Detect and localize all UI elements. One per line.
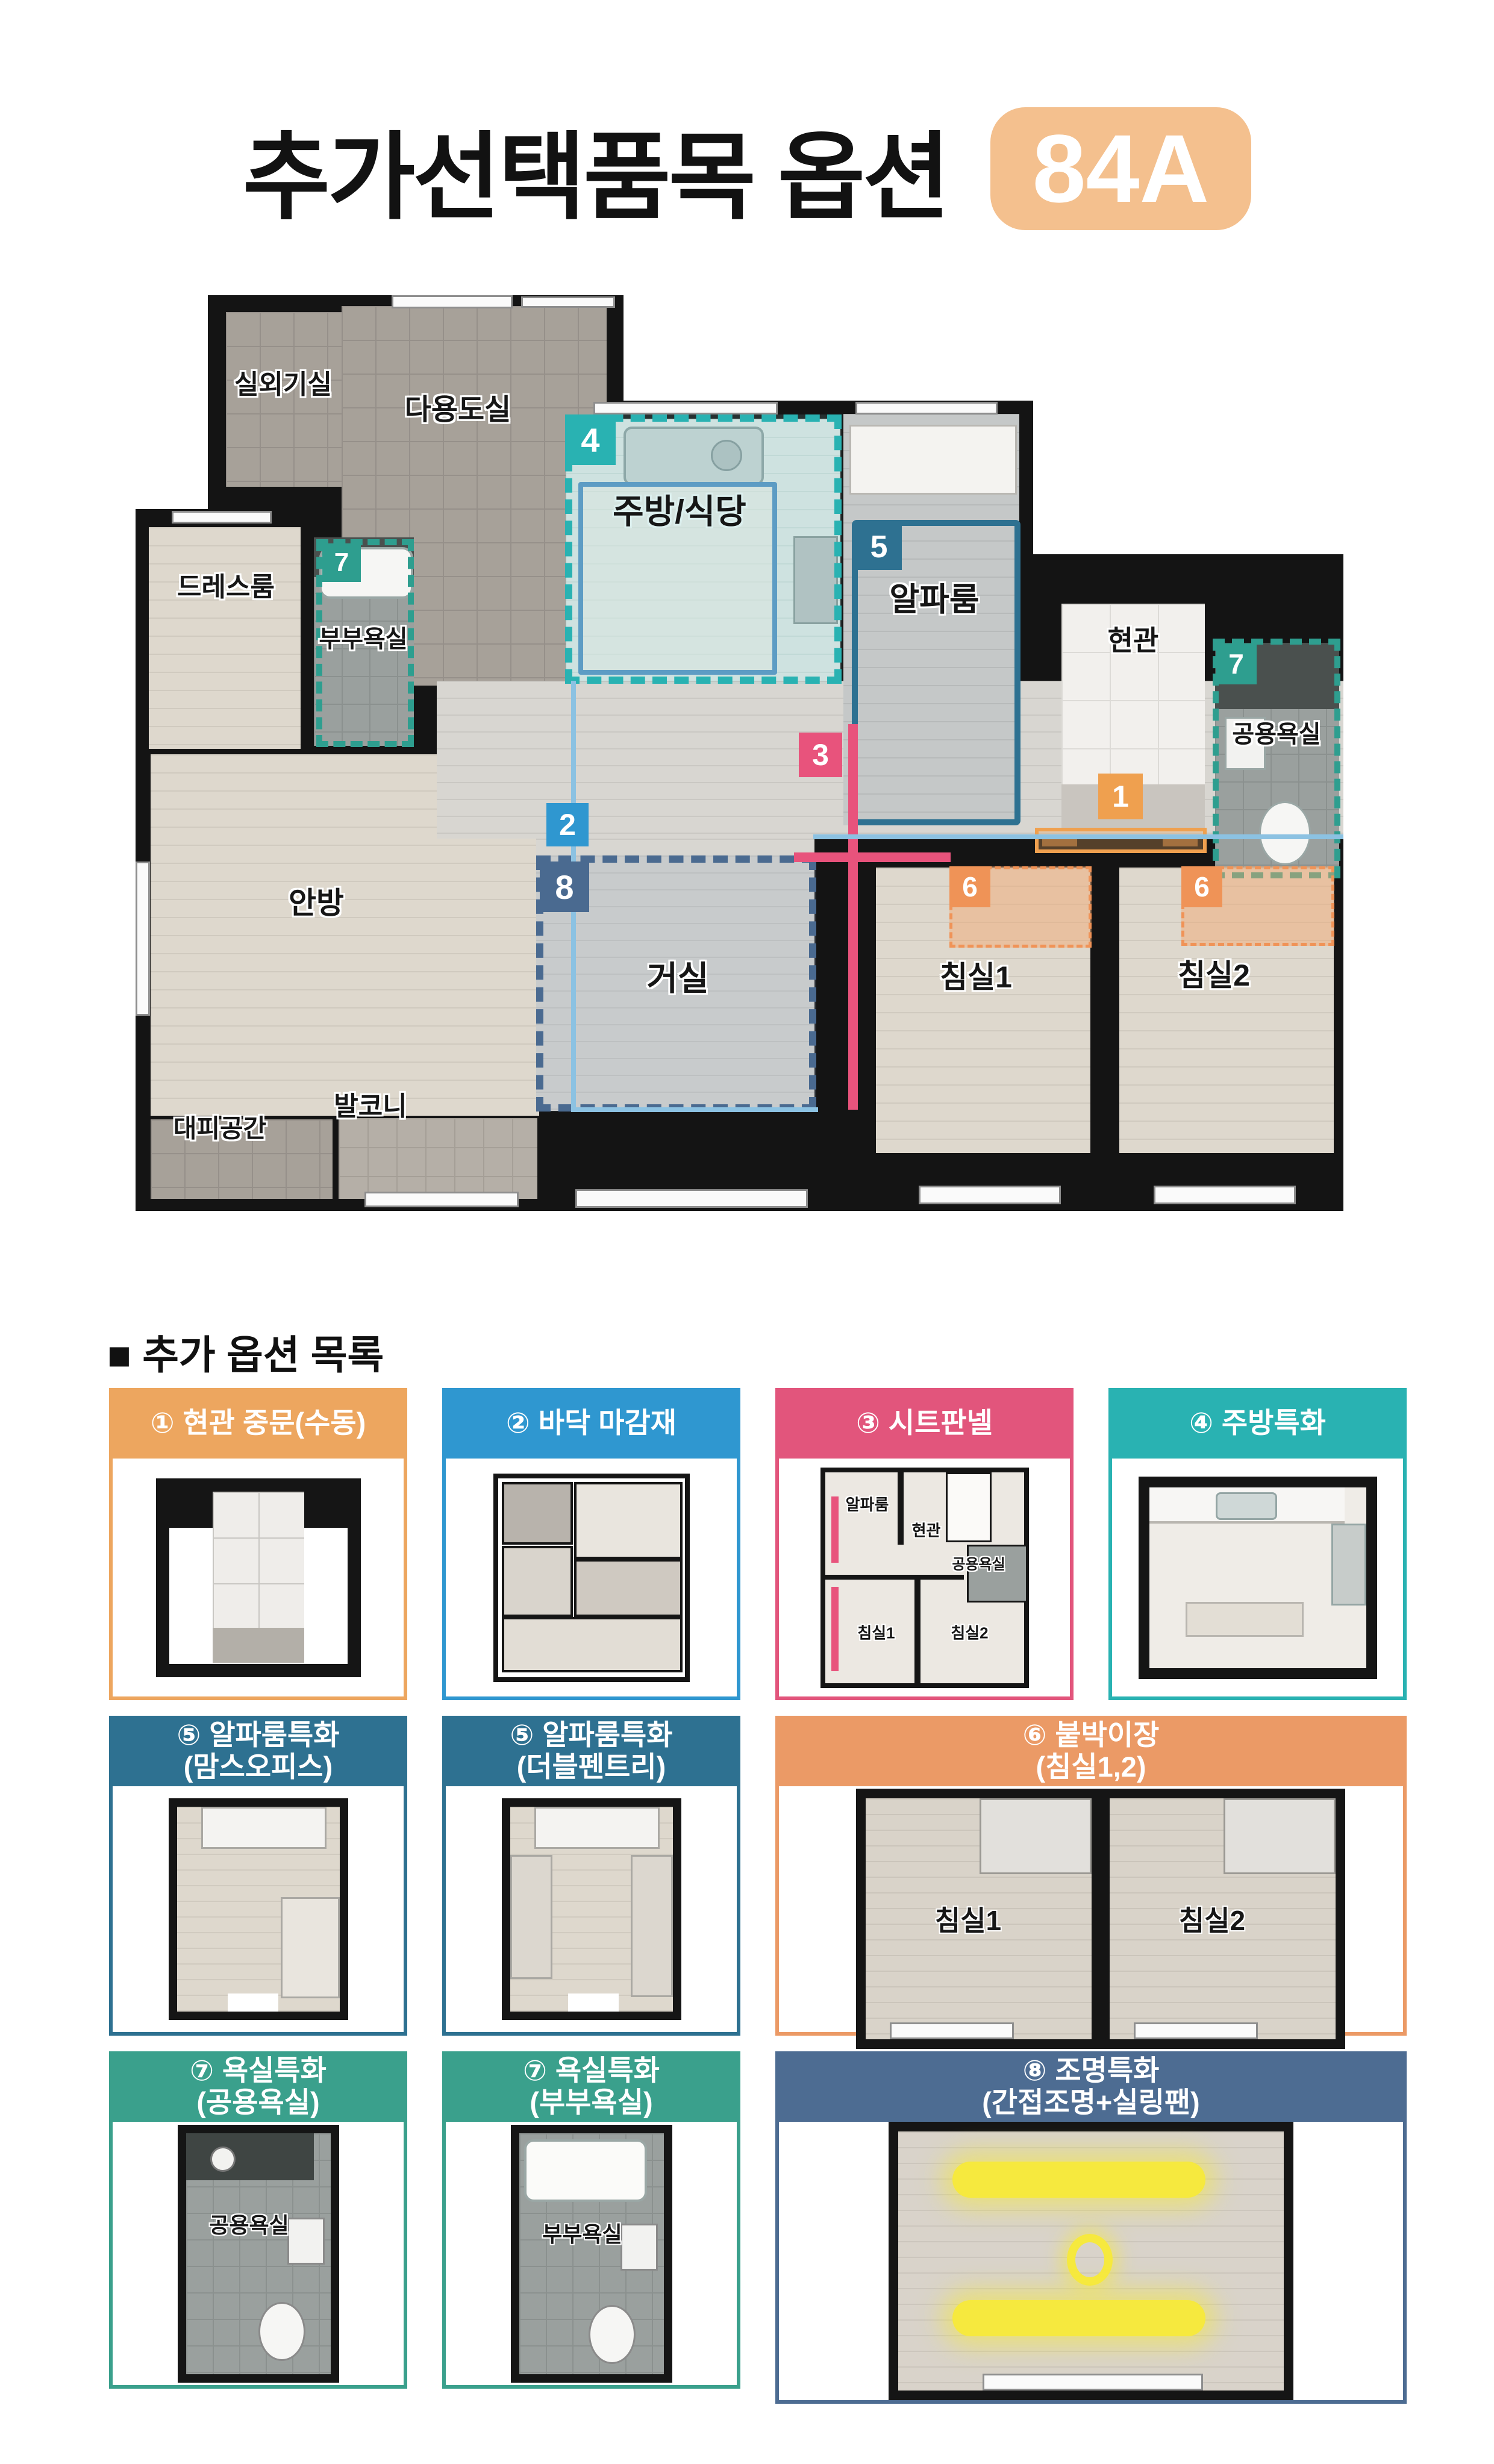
option-card-1-header: ①현관 중문(수동) — [109, 1388, 407, 1459]
alpha-moms-office-graphic — [169, 1798, 348, 2020]
label-bedroom1: 침실1 — [940, 953, 1012, 996]
card-title: 조명특화 — [1055, 2055, 1159, 2087]
option-card-7b-body: 부부욕실 — [442, 2122, 740, 2389]
door-gap — [228, 1993, 278, 2012]
option-card-3-body: 알파룸 현관 공용욕실 침실1 침실2 — [775, 1459, 1074, 1700]
option-card-4: ④주방특화 — [1108, 1388, 1407, 1700]
sink-icon — [1216, 1492, 1277, 1520]
marker-2: 2 — [546, 803, 589, 846]
label-bedroom1: 침실1 — [935, 1899, 1001, 1939]
master-bath-graphic: 부부욕실 — [511, 2125, 672, 2383]
card-num: ⑤ — [510, 1719, 534, 1751]
marker-8: 8 — [540, 861, 589, 912]
window-icon — [919, 1186, 1061, 1204]
option-card-7a-body: 공용욕실 — [109, 2122, 407, 2389]
card-subtitle: (간접조명+실링팬) — [982, 2087, 1199, 2119]
wardrobe — [980, 1798, 1092, 1874]
card-title: 시트판넬 — [889, 1407, 993, 1439]
option-card-3: ③시트판넬 알파룸 현관 공용욕실 침실1 침실2 — [775, 1388, 1074, 1700]
card-subtitle: (침실1,2) — [1036, 1751, 1146, 1783]
room-floor-balcony — [339, 1118, 537, 1199]
option-card-5b: ⑤알파룸특화 (더블펜트리) — [442, 1716, 740, 2036]
option-card-1: ①현관 중문(수동) — [109, 1388, 407, 1700]
option-card-5a: ⑤알파룸특화 (맘스오피스) — [109, 1716, 407, 2036]
marker-1: 1 — [1098, 774, 1143, 819]
bathtub-icon — [524, 2139, 647, 2202]
option-card-2-body — [442, 1459, 740, 1700]
door-gap — [568, 1993, 619, 2012]
option-card-7b: ⑦욕실특화 (부부욕실) 부부욕실 — [442, 2051, 740, 2389]
label-shelter: 대피공간 — [173, 1108, 267, 1145]
window-icon — [136, 861, 150, 1016]
label-entrance: 현관 — [1108, 619, 1159, 658]
option-card-6: ⑥붙박이장 (침실1,2) 침실1 침실2 — [775, 1716, 1407, 2036]
bath-counter — [186, 2133, 314, 2180]
mini-room — [502, 1546, 573, 1617]
island-counter — [1186, 1602, 1304, 1637]
option-card-8-header: ⑧조명특화 (간접조명+실링팬) — [775, 2051, 1407, 2122]
mini-label-common-bath: 공용욕실 — [952, 1552, 1005, 1573]
window-icon — [855, 402, 998, 414]
mini-wall — [914, 1580, 920, 1683]
option-card-4-body — [1108, 1459, 1407, 1700]
mini-entry — [946, 1472, 992, 1542]
washbasin-icon — [287, 2218, 325, 2265]
mini-label-bedroom2: 침실2 — [951, 1621, 988, 1643]
entrance-door-graphic — [156, 1478, 361, 1677]
mini-wall — [825, 1575, 964, 1580]
toilet-icon — [589, 2305, 636, 2364]
option-card-2-header: ②바닥 마감재 — [442, 1388, 740, 1459]
kitchen-graphic — [1139, 1477, 1377, 1679]
label-bedroom2: 침실2 — [1179, 1899, 1245, 1939]
toilet-icon — [258, 2302, 305, 2361]
card-num: ⑤ — [177, 1719, 201, 1751]
sheet-panel-line — [848, 724, 858, 1110]
window-icon — [593, 402, 778, 414]
option-card-7a: ⑦욕실특화 (공용욕실) 공용욕실 — [109, 2051, 407, 2389]
card-subtitle: (부부욕실) — [530, 2087, 652, 2119]
marker-7-master-bath: 7 — [322, 543, 361, 582]
window-icon — [521, 296, 615, 308]
card-title: 붙박이장 — [1055, 1719, 1159, 1751]
label-alpha-room: 알파룸 — [889, 573, 979, 621]
option-cards-grid: ①현관 중문(수동) ②바닥 마감재 — [109, 1388, 1407, 2389]
common-bath-graphic: 공용욕실 — [178, 2125, 339, 2383]
mini-label-alpha: 알파룸 — [846, 1492, 889, 1515]
mini-room — [574, 1482, 683, 1559]
marker-6-bedroom1: 6 — [949, 866, 990, 907]
label-master-bedroom: 안방 — [289, 879, 344, 922]
card-title: 현관 중문(수동) — [183, 1407, 366, 1439]
option-card-4-header: ④주방특화 — [1108, 1388, 1407, 1459]
indirect-light-bar — [952, 2300, 1205, 2336]
window-icon — [1134, 2022, 1258, 2039]
card-subtitle: (맘스오피스) — [184, 1751, 333, 1783]
card-num: ④ — [1189, 1407, 1213, 1439]
card-num: ⑥ — [1023, 1719, 1047, 1751]
window-icon — [392, 295, 513, 308]
card-title: 알파룸특화 — [542, 1719, 672, 1751]
mini-floorplan-graphic — [493, 1474, 690, 1682]
sheet-panel-miniplan: 알파룸 현관 공용욕실 침실1 침실2 — [820, 1468, 1029, 1688]
window-icon — [1154, 1186, 1296, 1204]
wall-block — [304, 1492, 348, 1528]
label-outdoor-unit: 실외기실 — [234, 363, 332, 401]
options-heading: ■ 추가 옵션 목록 — [107, 1323, 384, 1381]
card-num: ③ — [856, 1407, 880, 1439]
card-title: 욕실특화 — [555, 2055, 660, 2087]
option-card-5a-header: ⑤알파룸특화 (맘스오피스) — [109, 1716, 407, 1786]
floor-plan: 1 2 3 4 5 6 6 7 7 8 실외기실 다용도실 드레스룸 부부욕실 … — [136, 295, 1343, 1211]
card-subtitle: (공용욕실) — [196, 2087, 319, 2119]
option-card-5a-body — [109, 1786, 407, 2036]
page-title: 추가선택품목 옵션 — [243, 100, 948, 238]
marker-4: 4 — [565, 414, 616, 465]
option-card-7a-header: ⑦욕실특화 (공용욕실) — [109, 2051, 407, 2122]
lighting-graphic — [889, 2122, 1293, 2400]
alpha-closet — [849, 425, 1017, 495]
mini-label-entrance: 현관 — [912, 1518, 941, 1540]
card-num: ⑦ — [523, 2055, 547, 2087]
ceiling-fan-icon — [1067, 2234, 1113, 2286]
option-card-5b-header: ⑤알파룸특화 (더블펜트리) — [442, 1716, 740, 1786]
wall-block — [169, 1492, 213, 1528]
label-master-bath: 부부욕실 — [319, 619, 407, 654]
mini-pink-line — [831, 1496, 839, 1563]
label-common-bath: 공용욕실 — [1232, 714, 1321, 749]
window-icon — [172, 511, 272, 524]
card-num: ② — [506, 1407, 530, 1439]
label-kitchen-dining: 주방/식당 — [613, 485, 746, 534]
shower-icon — [210, 2147, 236, 2172]
pantry-shelf — [631, 1855, 673, 1997]
label-balcony: 발코니 — [334, 1084, 407, 1123]
room-floor-dressroom — [149, 527, 301, 749]
card-title: 욕실특화 — [222, 2055, 327, 2087]
floor-finish-line — [571, 1107, 818, 1112]
stove-icon — [1331, 1524, 1366, 1606]
bedroom1-box: 침실1 — [856, 1789, 1101, 2049]
floor-finish-line — [813, 834, 1343, 839]
label-utility: 다용도실 — [405, 386, 511, 428]
card-num: ⑧ — [1023, 2055, 1047, 2087]
sheet-panel-line — [794, 852, 951, 862]
label-dressroom: 드레스룸 — [177, 565, 275, 604]
marker-3: 3 — [799, 733, 842, 777]
option-card-6-header: ⑥붙박이장 (침실1,2) — [775, 1716, 1407, 1786]
card-title: 바닥 마감재 — [539, 1407, 677, 1439]
window-icon — [575, 1189, 808, 1208]
wardrobe — [534, 1807, 660, 1849]
label-bedroom2: 침실2 — [1178, 951, 1250, 995]
option-card-7b-header: ⑦욕실특화 (부부욕실) — [442, 2051, 740, 2122]
brochure-page: 추가선택품목 옵션 84A — [0, 0, 1494, 2464]
unit-type-badge: 84A — [990, 107, 1252, 230]
door-tile — [213, 1492, 304, 1628]
option-card-2: ②바닥 마감재 — [442, 1388, 740, 1700]
marker-5: 5 — [856, 524, 902, 570]
builtin-wardrobe-graphic: 침실1 침실2 — [856, 1789, 1326, 2030]
label-master-bath: 부부욕실 — [542, 2217, 622, 2248]
option-card-8-body — [775, 2122, 1407, 2404]
window-icon — [983, 2374, 1203, 2391]
card-subtitle: (더블펜트리) — [517, 1751, 666, 1783]
mini-wall — [898, 1472, 904, 1545]
card-num: ① — [151, 1407, 175, 1439]
mini-label-bedroom1: 침실1 — [857, 1621, 895, 1643]
option-card-3-header: ③시트판넬 — [775, 1388, 1074, 1459]
pantry-shelf — [510, 1855, 552, 1979]
desk — [281, 1897, 340, 1998]
card-num: ⑦ — [190, 2055, 214, 2087]
wardrobe — [201, 1807, 327, 1849]
window-icon — [364, 1192, 519, 1207]
option-card-1-body — [109, 1459, 407, 1700]
marker-7-common-bath: 7 — [1216, 643, 1257, 684]
title-row: 추가선택품목 옵션 84A — [0, 90, 1494, 247]
wardrobe — [1224, 1798, 1336, 1874]
option-card-8: ⑧조명특화 (간접조명+실링팬) — [775, 2051, 1407, 2389]
alpha-double-pantry-graphic — [502, 1798, 681, 2020]
door-mat — [213, 1628, 304, 1663]
mini-pink-line — [831, 1587, 839, 1671]
bedroom2-box: 침실2 — [1100, 1789, 1345, 2049]
mini-room — [502, 1482, 573, 1545]
option-card-5b-body — [442, 1786, 740, 2036]
card-title: 주방특화 — [1222, 1407, 1326, 1439]
window-icon — [890, 2022, 1014, 2039]
washbasin-icon — [620, 2224, 658, 2271]
mini-room — [574, 1559, 683, 1617]
label-living-room: 거실 — [646, 952, 708, 1001]
indirect-light-bar — [952, 2162, 1205, 2198]
marker-6-bedroom2: 6 — [1181, 866, 1222, 907]
option-card-6-body: 침실1 침실2 — [775, 1786, 1407, 2036]
mini-room — [502, 1617, 683, 1672]
label-common-bath: 공용욕실 — [209, 2208, 289, 2239]
card-title: 알파룸특화 — [209, 1719, 339, 1751]
